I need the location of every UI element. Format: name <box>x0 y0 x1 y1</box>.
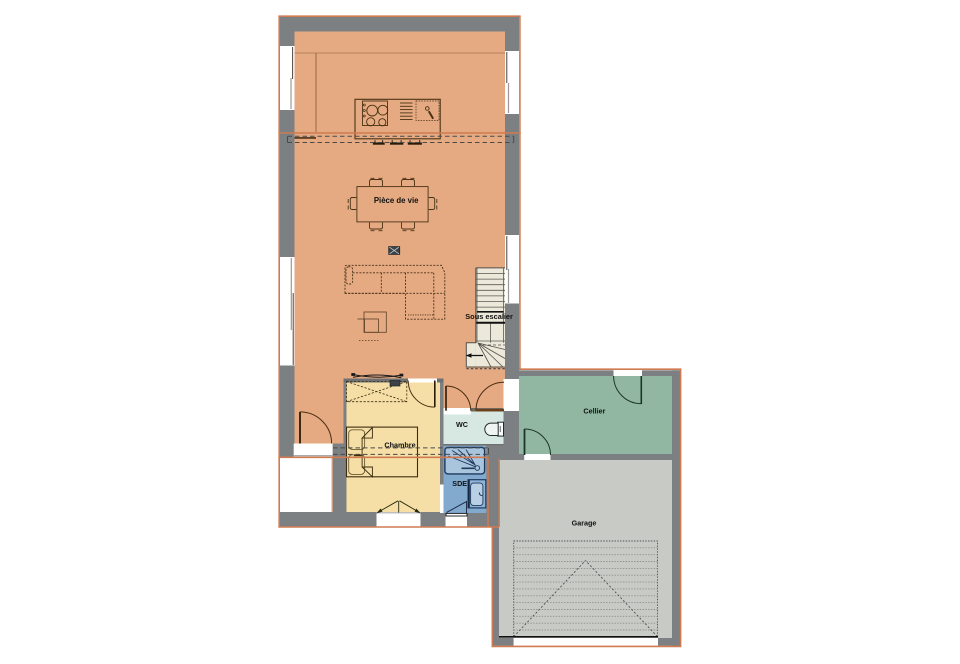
svg-text:Chambre: Chambre <box>384 441 415 450</box>
svg-text:Cellier: Cellier <box>583 407 605 416</box>
svg-text:Pièce de vie: Pièce de vie <box>374 196 419 205</box>
svg-text:Sous escalier: Sous escalier <box>465 312 513 321</box>
svg-text:WC: WC <box>456 420 468 429</box>
svg-text:SDE: SDE <box>452 479 467 488</box>
svg-text:Garage: Garage <box>572 519 597 528</box>
